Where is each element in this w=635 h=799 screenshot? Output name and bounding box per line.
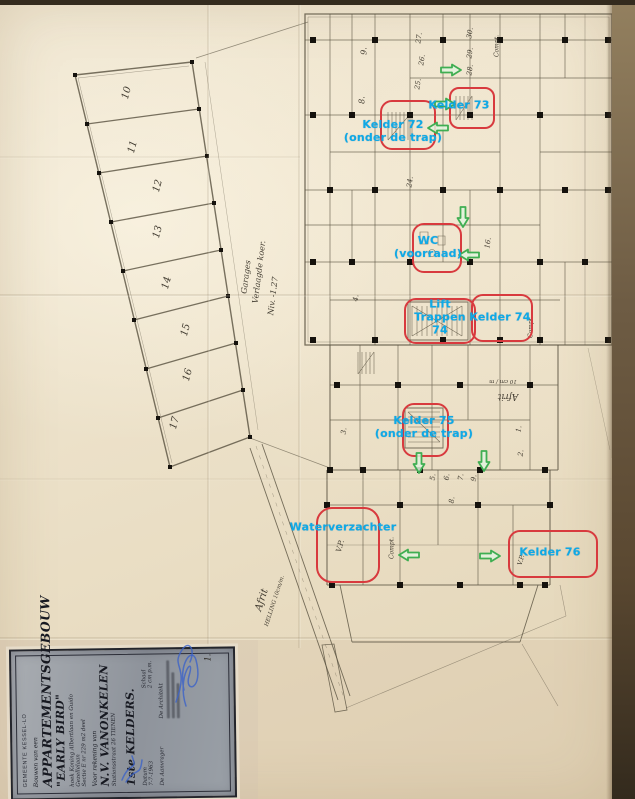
annotation-line: Kelder 74 — [469, 311, 530, 324]
annotation-wc-voorraad: WC(voorraad) — [394, 234, 462, 260]
annotation-line: Lift — [414, 298, 466, 311]
direction-arrow-right — [440, 62, 462, 81]
annotation-kelder-75: Kelder 75(onder de trap) — [375, 414, 473, 440]
annotation-line: Kelder 76 — [519, 546, 580, 559]
direction-arrow-down — [412, 452, 426, 478]
annotation-kelder-74: Kelder 74 — [469, 311, 530, 324]
annotation-line: Kelder 72 — [344, 118, 442, 131]
signature-ink — [122, 646, 198, 782]
direction-arrow-down — [456, 206, 470, 232]
annotation-lift-trappen-74: LiftTrappen74 — [414, 298, 466, 337]
annotation-kelder-73: Kelder 73 — [428, 99, 489, 112]
direction-arrow-down — [477, 450, 491, 476]
signature-layer — [0, 0, 635, 799]
annotation-line: (voorraad) — [394, 247, 462, 260]
annotation-line: 74 — [414, 324, 466, 337]
scanned-plan-sheet: GaragesVerlaagde koer.Niv. -1.27AfritHEL… — [0, 0, 635, 799]
annotation-line: Kelder 73 — [428, 99, 489, 112]
annotation-waterverzachter: Waterverzachter — [290, 521, 397, 534]
annotation-line: (onder de trap) — [375, 427, 473, 440]
annotation-kelder-72: Kelder 72(onder de trap) — [344, 118, 442, 144]
annotation-line: Kelder 75 — [375, 414, 473, 427]
annotation-line: (onder de trap) — [344, 131, 442, 144]
direction-arrow-left — [398, 547, 420, 566]
annotation-line: Trappen — [414, 311, 466, 324]
direction-arrow-right — [479, 548, 501, 567]
highlight-waterverzachter-box — [316, 507, 380, 583]
annotation-line: WC — [394, 234, 462, 247]
annotation-kelder-76: Kelder 76 — [519, 546, 580, 559]
annotation-line: Waterverzachter — [290, 521, 397, 534]
